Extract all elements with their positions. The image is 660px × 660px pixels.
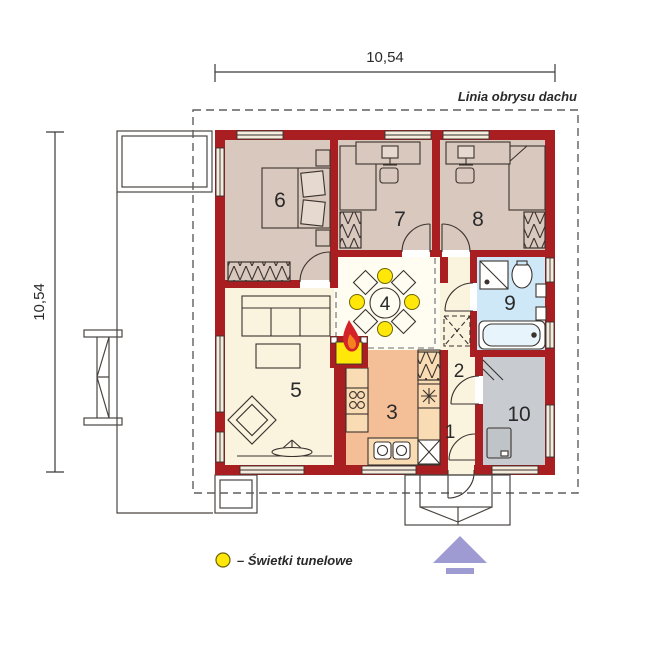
room-9-label: 9 [504, 292, 516, 315]
chair-icon [380, 168, 398, 183]
dimension-left [46, 132, 64, 472]
sofa-icon [242, 296, 330, 336]
room-8-label: 8 [472, 208, 484, 231]
fridge-icon [418, 384, 440, 408]
nightstand-icon [316, 150, 330, 166]
hob-icon [346, 388, 368, 414]
dimension-top-label: 10,54 [366, 49, 404, 66]
window-icon [216, 432, 224, 462]
room-10-label: 10 [507, 403, 530, 426]
desk-icon [446, 142, 510, 164]
room-7-label: 7 [394, 208, 406, 231]
legend-label: – Świetki tunelowe [237, 553, 353, 568]
bidet-icon [536, 307, 546, 320]
boiler-icon [487, 428, 511, 458]
entrance-arrow-icon [433, 536, 487, 574]
coffee-table-icon [256, 344, 300, 368]
terrace-post-outline [215, 475, 257, 513]
roof-outline-label: Linia obrysu dachu [458, 89, 577, 104]
room-2-label: 2 [454, 361, 465, 382]
dimension-top [215, 64, 555, 82]
double-bed-icon [262, 168, 330, 228]
window-icon [362, 466, 416, 474]
bathtub-icon [479, 321, 545, 349]
window-icon [443, 131, 489, 139]
window-icon [237, 131, 283, 139]
washbasin-icon [512, 261, 532, 288]
room-6-label: 6 [274, 189, 286, 212]
nightstand-icon [316, 230, 330, 246]
skylight-icon [378, 269, 393, 284]
wardrobe-icon [524, 212, 545, 248]
room-3-label: 3 [386, 401, 398, 424]
entrance-opening [448, 465, 474, 475]
room-5-label: 5 [290, 379, 302, 402]
skylight-icon [378, 322, 393, 337]
legend-skylight-icon [216, 553, 230, 567]
window-icon [546, 405, 554, 457]
dishwasher-icon [418, 440, 440, 464]
window-icon [546, 322, 554, 348]
chair-icon [456, 168, 474, 183]
window-icon [385, 131, 431, 139]
room-4-label: 4 [380, 294, 391, 315]
legend: – Świetki tunelowe [216, 553, 353, 568]
pantry-shelf-icon [418, 352, 440, 380]
entrance-steps [405, 475, 510, 525]
window-icon [546, 258, 554, 282]
window-icon [216, 336, 224, 412]
skylight-icon [350, 295, 365, 310]
window-icon [216, 148, 224, 196]
floor-plan-drawing: 10,54 10,54 Linia obrysu dachu 1 2 3 4 5… [0, 0, 660, 660]
window-icon [240, 466, 304, 474]
carport-outline [117, 131, 212, 192]
side-stair-icon [84, 330, 122, 425]
toilet-icon [536, 284, 546, 297]
dimension-left-label: 10,54 [31, 283, 48, 321]
wardrobe-icon [228, 262, 290, 281]
skylight-icon [405, 295, 420, 310]
shower-icon [480, 261, 508, 289]
room-1-label: 1 [445, 422, 456, 443]
single-bed-icon [509, 146, 545, 210]
floor-plan-page: 10,54 10,54 Linia obrysu dachu 1 2 3 4 5… [0, 0, 660, 660]
wardrobe-icon [340, 212, 361, 248]
window-icon [492, 466, 538, 474]
